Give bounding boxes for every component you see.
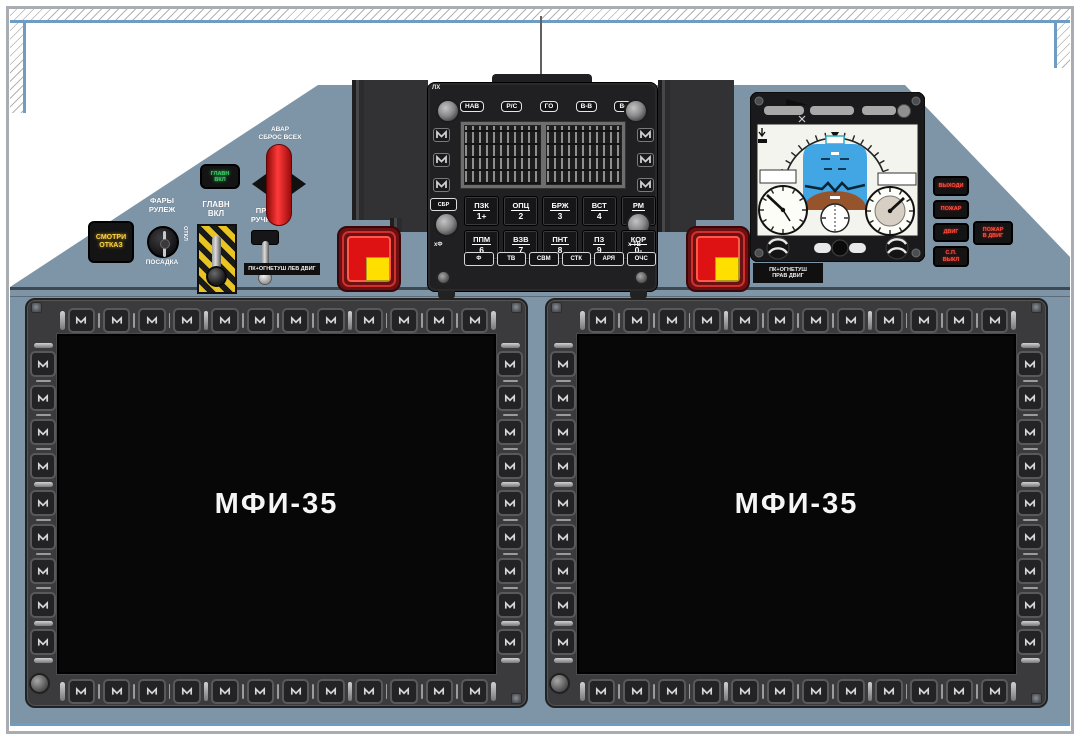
cockpit-panel-page: { "displays": { "left": {"label": "МФИ-3… (0, 0, 1080, 740)
drawing-frame (6, 6, 1074, 734)
